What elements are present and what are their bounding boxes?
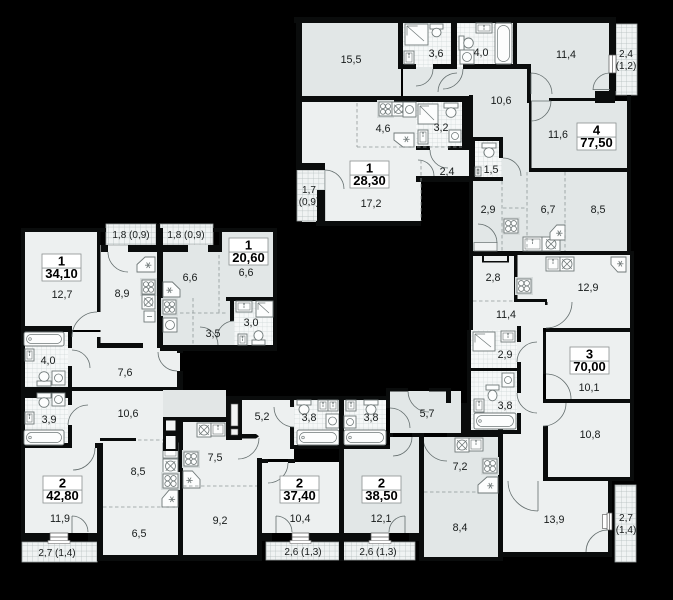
svg-text:15,5: 15,5 [341,54,362,66]
svg-text:11,4: 11,4 [556,49,576,61]
svg-text:10,6: 10,6 [118,408,139,420]
svg-text:38,50: 38,50 [365,488,398,503]
svg-text:6,6: 6,6 [239,267,254,279]
svg-text:77,50: 77,50 [580,135,613,150]
svg-text:8,4: 8,4 [453,522,468,534]
svg-text:9,2: 9,2 [213,515,228,527]
svg-text:3,2: 3,2 [434,122,449,134]
svg-text:2,6 (1,3): 2,6 (1,3) [284,547,321,558]
svg-text:2,4: 2,4 [440,166,455,178]
svg-text:37,40: 37,40 [283,488,316,503]
svg-text:2,8: 2,8 [486,272,501,284]
svg-text:2,4: 2,4 [619,49,633,60]
svg-text:10,8: 10,8 [580,429,601,441]
svg-text:3,0: 3,0 [244,317,259,329]
svg-text:1,8 (0,9): 1,8 (0,9) [167,230,204,241]
svg-text:3,8: 3,8 [364,412,379,424]
svg-text:2,9: 2,9 [498,349,513,361]
svg-text:12,9: 12,9 [578,282,599,294]
svg-text:13,9: 13,9 [544,514,565,526]
svg-text:4,0: 4,0 [474,47,489,59]
svg-text:34,10: 34,10 [45,266,78,281]
svg-text:6,7: 6,7 [541,204,556,216]
svg-text:11,6: 11,6 [548,129,568,141]
svg-text:10,6: 10,6 [491,95,512,107]
svg-text:7,2: 7,2 [453,461,468,473]
svg-text:10,4: 10,4 [290,513,311,525]
svg-text:7,5: 7,5 [208,452,223,464]
svg-text:8,5: 8,5 [591,204,606,216]
svg-text:2,9: 2,9 [481,204,496,216]
svg-text:(1,2): (1,2) [616,61,637,72]
svg-text:12,7: 12,7 [52,289,73,301]
svg-text:42,80: 42,80 [46,488,79,503]
svg-text:3,8: 3,8 [302,412,317,424]
svg-text:8,9: 8,9 [115,288,130,300]
svg-text:70,00: 70,00 [573,359,606,374]
svg-text:1,8 (0,9): 1,8 (0,9) [112,230,149,241]
svg-text:2,6 (1,3): 2,6 (1,3) [359,547,396,558]
svg-text:2,7: 2,7 [619,513,633,524]
svg-text:10,1: 10,1 [579,382,600,394]
svg-text:20,60: 20,60 [232,250,265,265]
svg-text:5,2: 5,2 [255,411,270,423]
svg-text:11,4: 11,4 [496,309,516,321]
svg-text:3,5: 3,5 [206,328,221,340]
svg-text:17,2: 17,2 [361,198,382,210]
svg-text:4,0: 4,0 [41,355,56,367]
svg-text:12,1: 12,1 [371,513,392,525]
svg-text:6,6: 6,6 [183,272,198,284]
svg-text:(0,9): (0,9) [299,197,320,208]
svg-text:5,7: 5,7 [420,408,435,420]
svg-text:2,7 (1,4): 2,7 (1,4) [38,548,75,559]
svg-text:3,8: 3,8 [498,400,513,412]
svg-text:11,9: 11,9 [50,513,70,525]
svg-text:28,30: 28,30 [353,173,386,188]
svg-text:1,5: 1,5 [484,164,499,176]
svg-text:1,7: 1,7 [302,185,316,196]
svg-text:8,5: 8,5 [131,466,146,478]
svg-text:7,6: 7,6 [118,367,133,379]
svg-text:(1,4): (1,4) [616,525,637,536]
svg-text:3,9: 3,9 [42,414,57,426]
svg-text:6,5: 6,5 [132,528,147,540]
svg-text:3,6: 3,6 [429,48,444,60]
svg-text:4,6: 4,6 [376,123,391,135]
